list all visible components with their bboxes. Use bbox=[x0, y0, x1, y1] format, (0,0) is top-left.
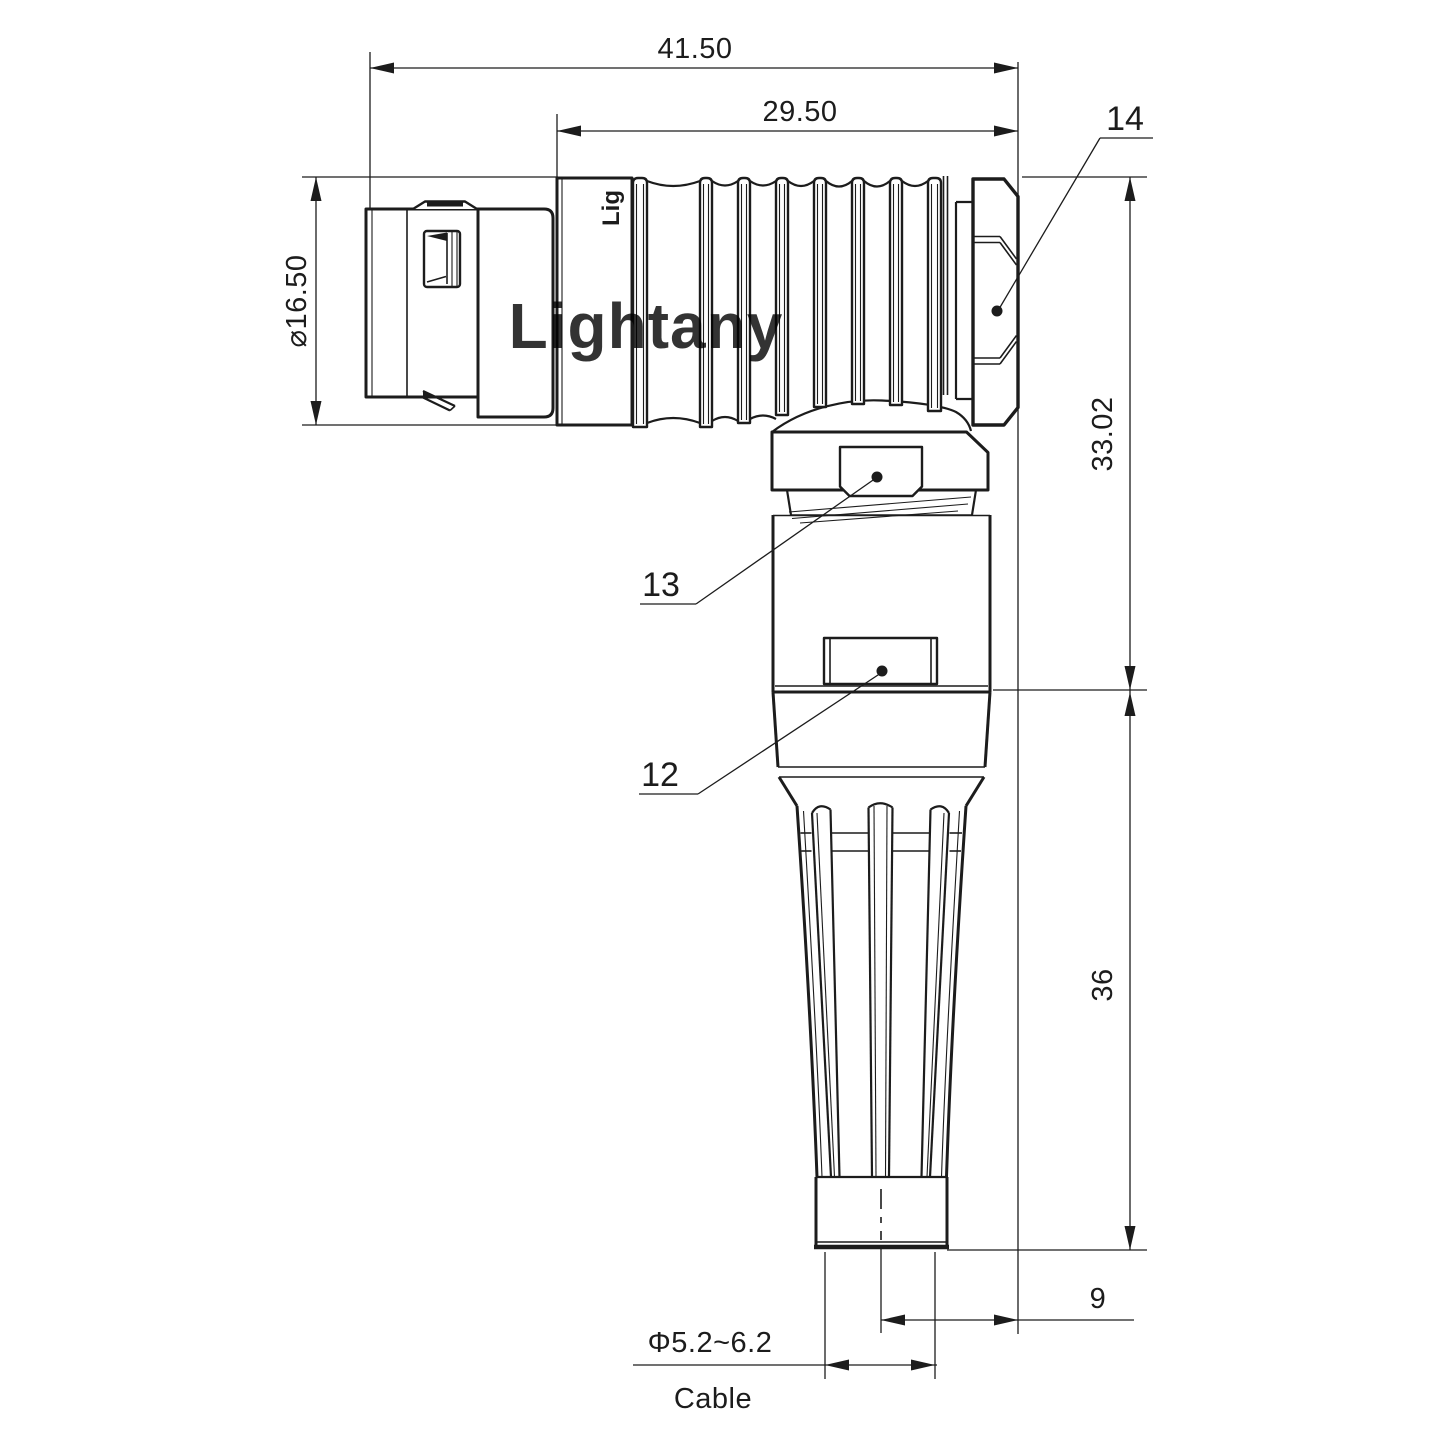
dim-front-diameter-value: ⌀16.50 bbox=[281, 254, 313, 347]
dimension-boot-height: 36 bbox=[947, 690, 1147, 1250]
cable-ferrule bbox=[814, 1177, 949, 1247]
part-label-14: 14 bbox=[1106, 100, 1144, 138]
strain-relief-boot bbox=[773, 692, 990, 1177]
gland-tab bbox=[840, 447, 922, 496]
dimension-cable-diameter: Φ5.2~6.2 Cable bbox=[633, 1252, 937, 1415]
leader-dot-12 bbox=[877, 666, 888, 677]
dimension-axis-offset: 9 bbox=[881, 1247, 1134, 1333]
dim-elbow-height-value: 33.02 bbox=[1087, 396, 1119, 471]
part-label-12: 12 bbox=[641, 756, 679, 794]
watermark-text: Lightany bbox=[509, 290, 784, 362]
keying-window bbox=[424, 231, 460, 287]
part-label-13: 13 bbox=[642, 566, 680, 604]
connector-drawing: 41.50 29.50 ⌀16.50 33.02 36 9 bbox=[0, 0, 1440, 1440]
cable-label: Cable bbox=[674, 1383, 752, 1415]
housing-tab bbox=[824, 638, 937, 684]
hex-nut bbox=[973, 179, 1018, 425]
technical-drawing-canvas: 41.50 29.50 ⌀16.50 33.02 36 9 bbox=[0, 0, 1440, 1440]
leader-dot-13 bbox=[872, 472, 883, 483]
housing-cylinder bbox=[773, 515, 990, 692]
leader-dot-14 bbox=[992, 306, 1003, 317]
body-marking-text: Lig bbox=[598, 190, 625, 226]
dim-rear-length-value: 29.50 bbox=[762, 96, 837, 128]
dim-overall-length-value: 41.50 bbox=[657, 33, 732, 65]
dim-offset-value: 9 bbox=[1090, 1283, 1107, 1315]
dim-cable-diameter-value: Φ5.2~6.2 bbox=[648, 1327, 773, 1359]
dim-boot-height-value: 36 bbox=[1087, 968, 1119, 1001]
